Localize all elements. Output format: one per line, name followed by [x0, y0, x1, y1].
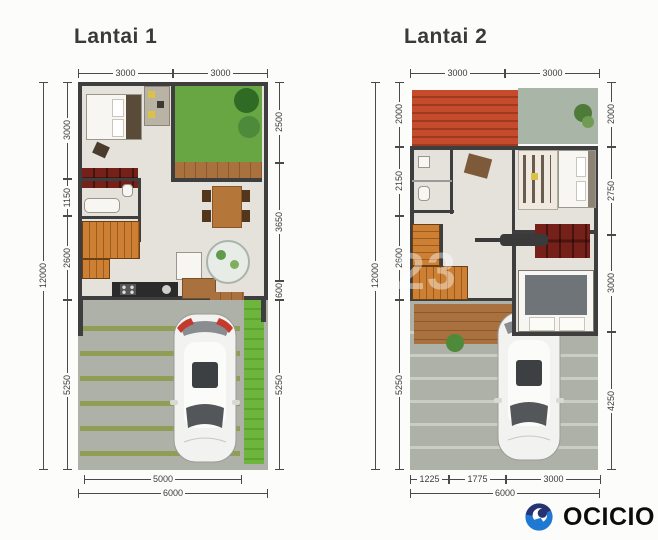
floor1-plan — [78, 82, 268, 470]
dim-floor1-right-4: 5250 — [274, 300, 285, 470]
dim-floor1-left-2: 1150 — [62, 179, 73, 216]
pillow — [559, 317, 585, 331]
dim-floor2-right-1: 2000 — [606, 82, 617, 147]
floor2-bed-1 — [558, 150, 596, 208]
floor1-lawn-strip — [244, 300, 264, 464]
dim-floor2-right-3: 3000 — [606, 235, 617, 332]
dim-floor2-bottom-2: 1775 — [449, 474, 506, 485]
dim-floor1-top-2: 3000 — [173, 68, 268, 79]
floor1-garden — [174, 86, 262, 162]
clothes — [148, 111, 155, 118]
dim-floor1-left-total: 12000 — [38, 82, 49, 470]
dim-floor2-right-2: 2750 — [606, 147, 617, 235]
bed-duvet — [525, 275, 587, 315]
logo-text: OCICIO — [563, 503, 655, 532]
pillow — [576, 157, 586, 177]
floor2-bed-2 — [518, 270, 594, 332]
ocicio-logo-icon — [522, 500, 556, 534]
clothes — [531, 173, 538, 180]
stove-icon — [120, 284, 136, 295]
floor1-stairs-landing — [82, 259, 110, 279]
dim-floor2-left-1: 2000 — [394, 82, 405, 147]
bed-headboard — [126, 95, 141, 139]
floor2-wall — [412, 210, 454, 213]
floor1-wall-stub — [261, 300, 266, 322]
dim-floor1-left-3: 2600 — [62, 216, 73, 300]
dim-floor2-bottom-total: 6000 — [410, 488, 600, 499]
floor2-sink — [418, 156, 430, 168]
dining-table — [212, 186, 242, 228]
chair — [202, 190, 211, 202]
dim-floor1-top-1: 3000 — [78, 68, 173, 79]
chair — [241, 190, 250, 202]
floor1-cabinet — [176, 252, 202, 280]
floor2-title: Lantai 2 — [404, 25, 487, 49]
floor1-kitchen-counter — [112, 282, 178, 297]
dim-floor2-right-4: 4250 — [606, 332, 617, 470]
dim-floor1-right-1: 2500 — [274, 82, 285, 163]
dim-floor1-left-1: 3000 — [62, 82, 73, 179]
floor1-bed — [86, 94, 142, 140]
tree-icon — [238, 116, 260, 138]
clothes — [157, 101, 164, 108]
pillow — [529, 317, 555, 331]
floor1-wardrobe — [144, 86, 170, 126]
tree-icon — [234, 88, 259, 113]
dim-floor2-left-4: 5250 — [394, 300, 405, 470]
plant-icon — [216, 250, 226, 260]
floor1-wall — [80, 178, 140, 181]
sink-icon — [162, 285, 171, 294]
chair — [241, 210, 250, 222]
floor1-dining-set — [202, 186, 250, 228]
floor1-title: Lantai 1 — [74, 25, 157, 49]
floor1-garden-deck — [174, 162, 262, 178]
dim-floor2-bottom-1: 1225 — [410, 474, 449, 485]
plant-icon — [446, 334, 464, 352]
floor1-wall-stub — [78, 300, 83, 336]
floor1-wall — [80, 216, 141, 219]
dim-floor2-bottom-3: 3000 — [506, 474, 601, 485]
floor2-wardrobe — [518, 150, 558, 210]
floor1-wall — [171, 82, 175, 180]
car-top-view — [170, 312, 240, 464]
dim-floor2-left-total: 12000 — [370, 82, 381, 470]
floor1-round-table — [206, 240, 250, 284]
ocicio-logo: OCICIO — [522, 500, 655, 534]
plant-icon — [230, 260, 239, 269]
dim-floor2-top-1: 3000 — [410, 68, 505, 79]
bed-headboard — [588, 151, 595, 207]
floor2-roof — [412, 90, 518, 152]
floor2-balcony-roof — [518, 88, 598, 144]
floorplan-canvas: Lantai 1 Lantai 2 — [0, 0, 658, 540]
dim-floor2-top-2: 3000 — [505, 68, 600, 79]
dim-floor2-left-2: 2150 — [394, 147, 405, 216]
watermark-text: 23 — [396, 242, 458, 302]
dim-floor1-right-3: 600 — [274, 281, 285, 300]
floor1-bathtub — [84, 198, 120, 213]
dim-floor1-left-4: 5250 — [62, 300, 73, 470]
pillow — [112, 119, 124, 137]
floor2-toilet — [418, 186, 430, 201]
floor1-stairs — [82, 221, 140, 259]
floor1-carport — [78, 300, 268, 470]
pillow — [112, 99, 124, 117]
floor2-desk-bar — [500, 234, 548, 246]
plant-icon — [582, 116, 594, 128]
floor2-desk-rod — [475, 238, 500, 242]
dim-floor1-bottom-total: 6000 — [78, 488, 268, 499]
floor1-wall — [171, 178, 262, 182]
floor1-toilet — [122, 184, 133, 197]
dim-floor1-right-2: 3650 — [274, 163, 285, 281]
chair — [202, 210, 211, 222]
pillow — [576, 181, 586, 201]
clothes — [148, 91, 155, 98]
floor2-shower-divider — [412, 180, 452, 182]
dim-floor1-bottom-inner: 5000 — [84, 474, 242, 485]
floor2-wall — [512, 148, 515, 234]
